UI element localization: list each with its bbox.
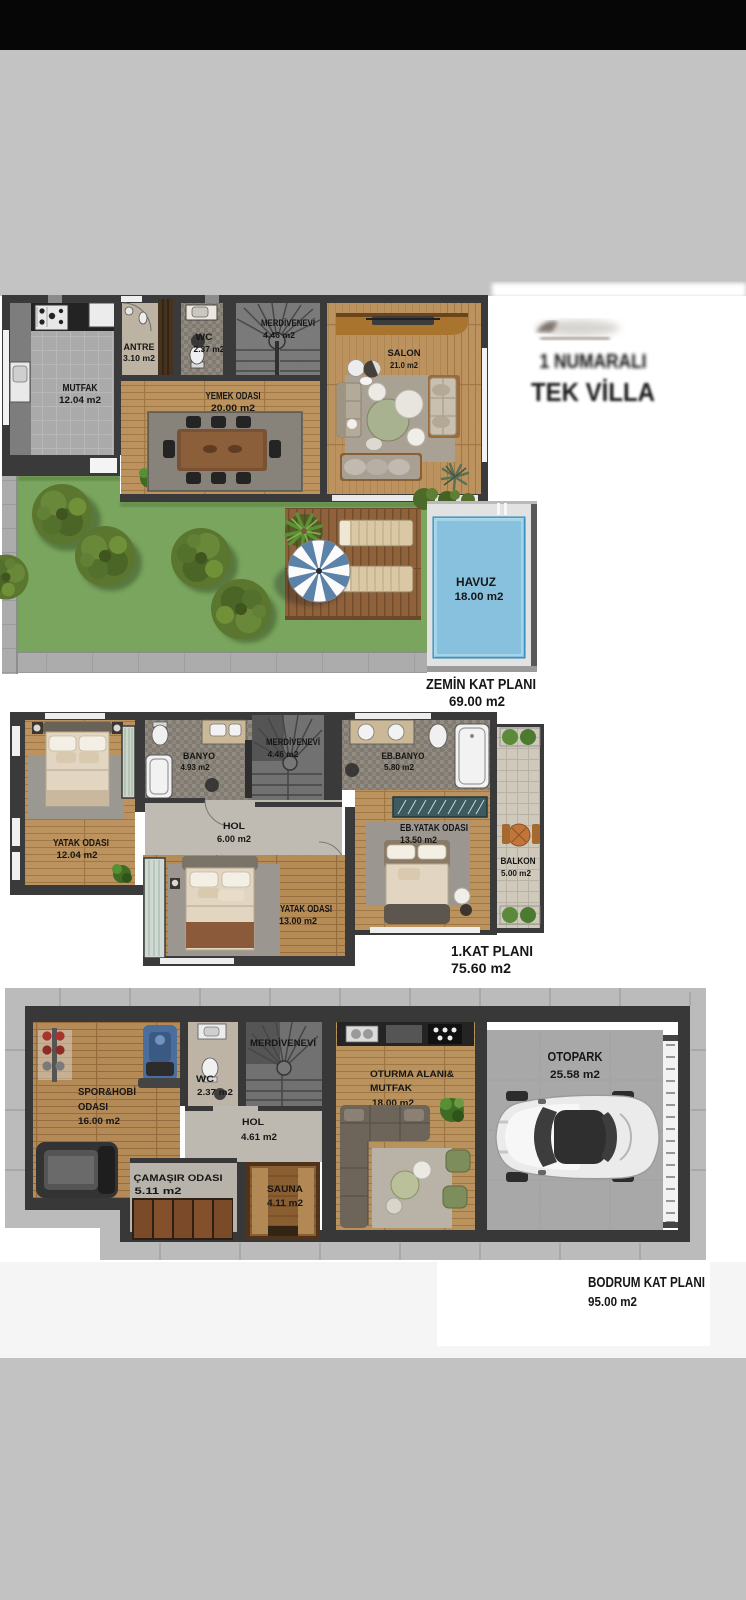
svg-text:MERDİVENEVİ: MERDİVENEVİ [266, 737, 320, 747]
svg-text:YEMEK ODASI: YEMEK ODASI [206, 391, 261, 402]
svg-text:4.61 m2: 4.61 m2 [241, 1132, 277, 1142]
svg-text:69.00 m2: 69.00 m2 [449, 693, 505, 709]
svg-text:21.0 m2: 21.0 m2 [390, 360, 418, 370]
svg-text:MUTFAK: MUTFAK [63, 383, 99, 394]
svg-text:12.04 m2: 12.04 m2 [59, 395, 101, 405]
svg-text:4.46 m2: 4.46 m2 [263, 330, 295, 340]
svg-text:75.60 m2: 75.60 m2 [451, 960, 511, 976]
svg-text:13.50 m2: 13.50 m2 [400, 835, 437, 845]
svg-text:MERDİVENEVİ: MERDİVENEVİ [250, 1038, 316, 1049]
svg-text:SPOR&HOBİ: SPOR&HOBİ [78, 1085, 136, 1098]
svg-text:WC: WC [196, 332, 213, 343]
svg-text:2.37 m2: 2.37 m2 [197, 1087, 233, 1097]
svg-text:MERDİVENEVİ: MERDİVENEVİ [261, 318, 315, 328]
svg-text:ODASI: ODASI [78, 1102, 108, 1113]
svg-text:ÇAMAŞIR ODASI: ÇAMAŞIR ODASI [134, 1173, 223, 1184]
svg-text:TEK VİLLA: TEK VİLLA [531, 377, 655, 407]
svg-text:WC: WC [196, 1074, 214, 1085]
svg-text:16.00 m2: 16.00 m2 [78, 1116, 120, 1126]
svg-text:6.00 m2: 6.00 m2 [217, 834, 251, 844]
svg-text:ANTRE: ANTRE [124, 342, 155, 352]
svg-text:5.00 m2: 5.00 m2 [501, 868, 531, 878]
svg-text:EB.YATAK ODASI: EB.YATAK ODASI [400, 823, 468, 834]
svg-text:1.KAT PLANI: 1.KAT PLANI [451, 943, 533, 960]
svg-text:YATAK ODASI: YATAK ODASI [280, 904, 332, 915]
svg-text:YATAK ODASI: YATAK ODASI [53, 838, 109, 849]
svg-text:4.11 m2: 4.11 m2 [267, 1198, 303, 1208]
svg-text:BALKON: BALKON [501, 856, 536, 866]
svg-text:2.37 m2: 2.37 m2 [194, 344, 225, 354]
svg-text:13.00 m2: 13.00 m2 [279, 916, 317, 926]
svg-text:SAUNA: SAUNA [267, 1184, 303, 1195]
svg-text:OTURMA ALANI&: OTURMA ALANI& [370, 1069, 454, 1080]
svg-text:SALON: SALON [388, 348, 421, 358]
svg-text:HOL: HOL [242, 1117, 264, 1128]
svg-text:HOL: HOL [223, 821, 245, 832]
svg-text:25.58 m2: 25.58 m2 [550, 1069, 600, 1081]
svg-text:18.00 m2: 18.00 m2 [455, 591, 504, 603]
svg-text:ZEMİN KAT PLANI: ZEMİN KAT PLANI [426, 676, 536, 693]
svg-text:3.10 m2: 3.10 m2 [123, 353, 155, 363]
svg-text:OTOPARK: OTOPARK [548, 1049, 604, 1064]
svg-text:4.46 m2: 4.46 m2 [268, 749, 299, 759]
svg-text:BANYO: BANYO [183, 751, 215, 762]
svg-text:12.04 m2: 12.04 m2 [57, 850, 98, 860]
svg-text:BODRUM KAT PLANI: BODRUM KAT PLANI [588, 1274, 705, 1291]
svg-text:1 NUMARALI: 1 NUMARALI [540, 351, 647, 373]
svg-text:4.93 m2: 4.93 m2 [181, 762, 210, 772]
svg-text:HAVUZ: HAVUZ [456, 575, 496, 589]
svg-text:EB.BANYO: EB.BANYO [382, 751, 425, 762]
svg-text:20.00 m2: 20.00 m2 [211, 403, 255, 413]
svg-text:5.80 m2: 5.80 m2 [384, 762, 414, 772]
svg-text:5.11 m2: 5.11 m2 [135, 1186, 182, 1196]
svg-text:MUTFAK: MUTFAK [370, 1083, 412, 1094]
svg-text:95.00 m2: 95.00 m2 [588, 1294, 637, 1309]
